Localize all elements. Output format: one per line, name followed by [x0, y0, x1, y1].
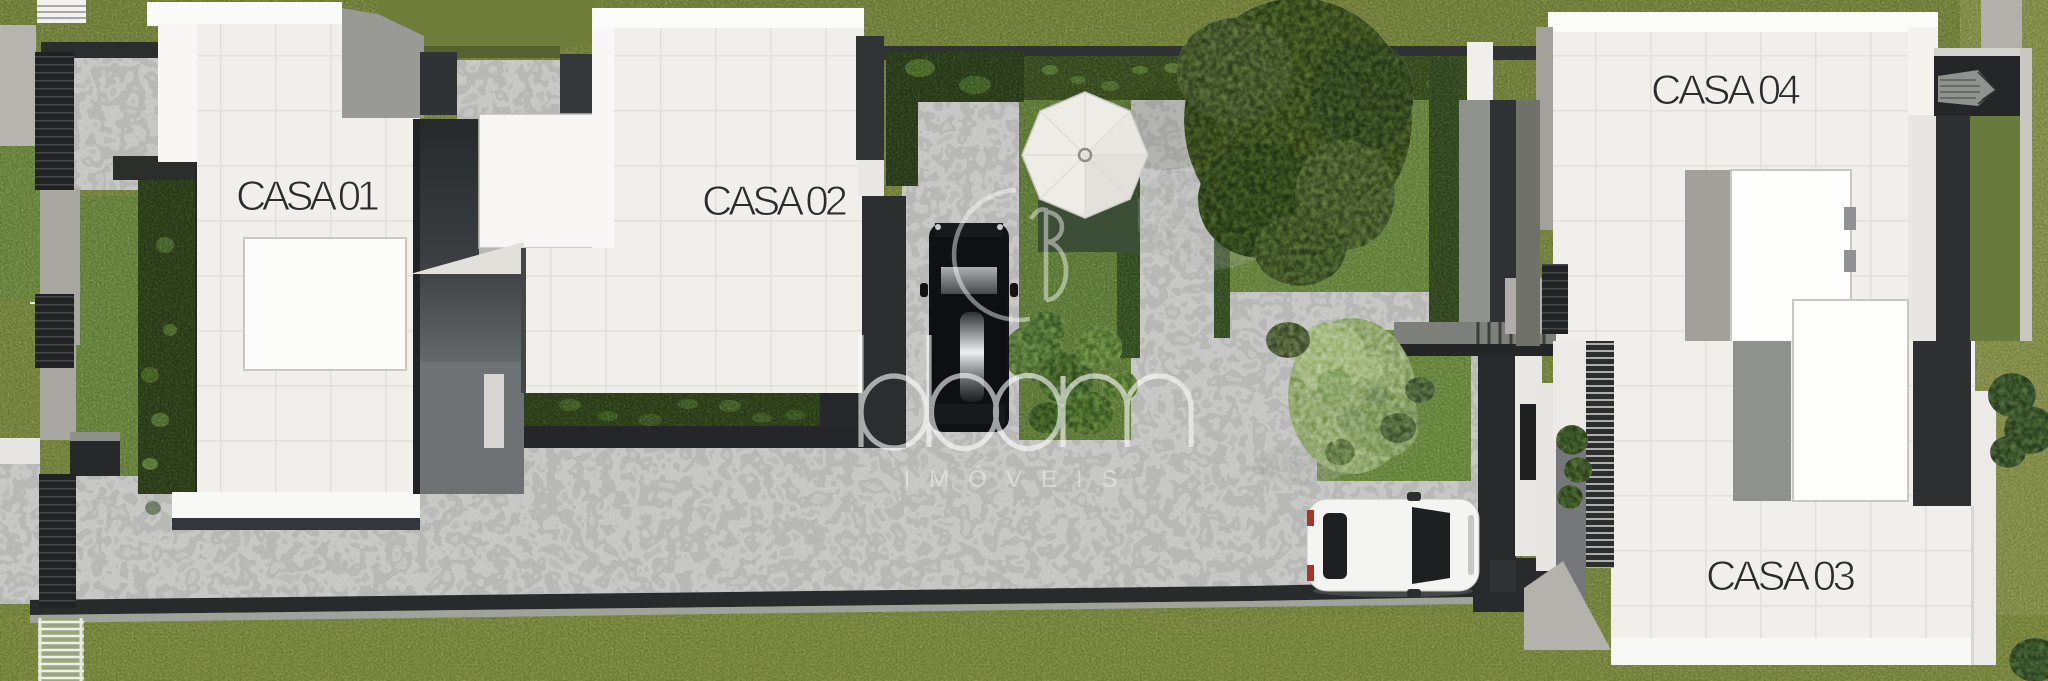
svg-text:CASA 02: CASA 02 — [702, 177, 848, 224]
svg-text:IMÓVEIS: IMÓVEIS — [903, 466, 1136, 493]
svg-text:CASA 03: CASA 03 — [1706, 552, 1856, 599]
svg-text:CASA 04: CASA 04 — [1651, 66, 1801, 113]
svg-text:CASA 01: CASA 01 — [236, 172, 380, 219]
